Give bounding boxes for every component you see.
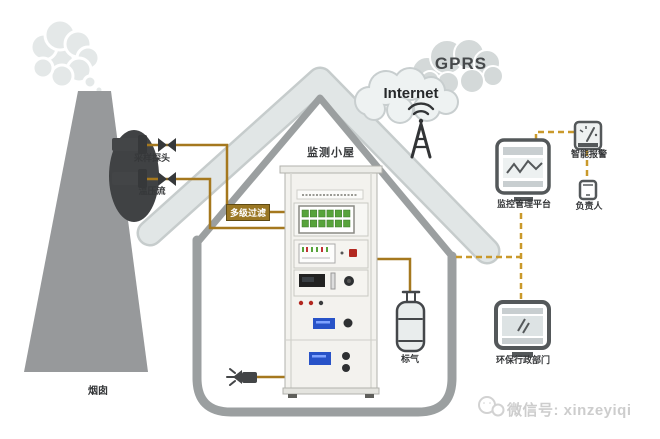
probe-top-label: 采样探头 xyxy=(126,153,178,163)
diagram-artwork xyxy=(0,0,660,439)
platform-monitor-icon xyxy=(497,140,549,201)
purge-nozzle-icon xyxy=(227,369,257,385)
smoke-cloud-icon xyxy=(31,20,103,94)
house-label: 监测小屋 xyxy=(298,147,364,160)
cems-diagram: 采样探头 温压流 多级过滤 监测小屋 烟囱 标气 GPRS Internet 监… xyxy=(0,0,660,439)
chimney-label: 烟囱 xyxy=(79,386,117,398)
alarm-gauge-icon xyxy=(575,122,601,149)
epa-monitor-icon xyxy=(496,302,549,357)
person-phone-icon xyxy=(580,181,596,199)
epa-label: 环保行政部门 xyxy=(482,355,564,365)
gas-cylinder-icon xyxy=(397,292,424,351)
watermark-text: 微信号: xinzeyiqi xyxy=(507,399,632,420)
alarm-label: 智能报警 xyxy=(566,149,612,159)
gprs-label: GPRS xyxy=(433,54,489,74)
gas-label: 标气 xyxy=(396,354,424,364)
platform-label: 监控管理平台 xyxy=(486,199,562,209)
person-label: 负责人 xyxy=(570,201,608,211)
calibration-gas-line xyxy=(377,259,410,291)
wechat-icon xyxy=(479,397,504,416)
probe-bottom-label: 温压流 xyxy=(128,186,176,196)
internet-label: Internet xyxy=(378,85,444,102)
filter-box-label: 多级过滤 xyxy=(226,204,270,221)
analyzer-cabinet-icon xyxy=(280,166,382,398)
